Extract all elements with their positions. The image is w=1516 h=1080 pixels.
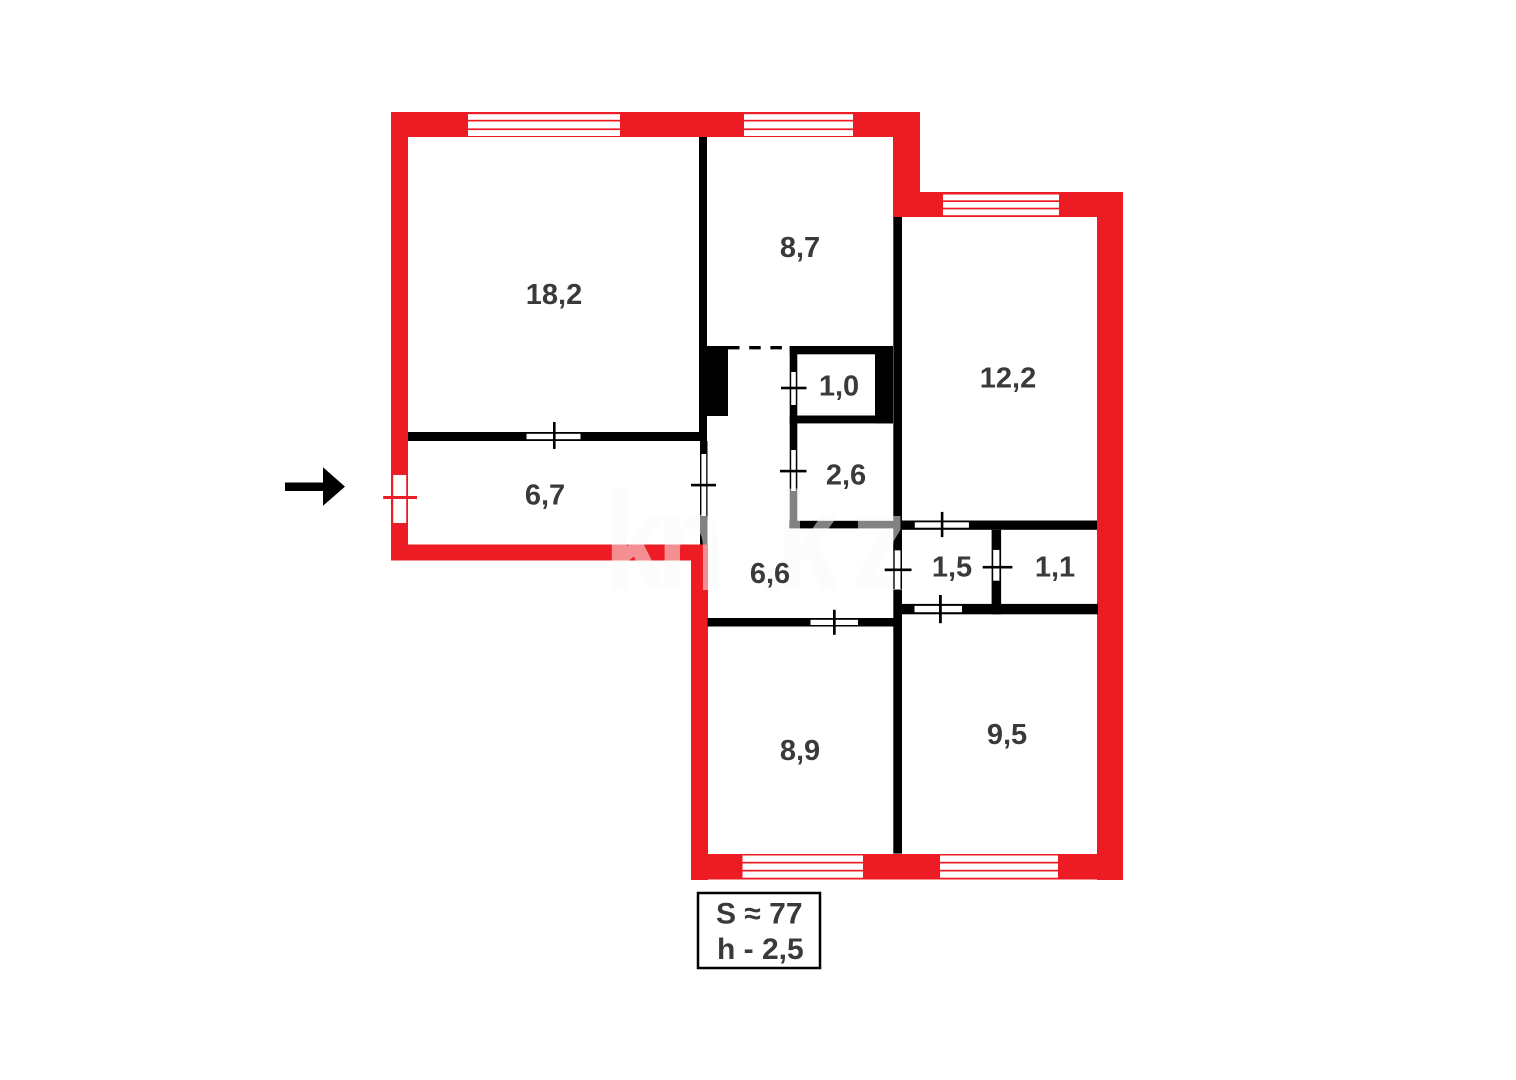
- svg-text:S ≈ 77: S ≈ 77: [716, 897, 803, 930]
- svg-text:1,1: 1,1: [1035, 552, 1075, 584]
- svg-text:1,0: 1,0: [819, 371, 859, 403]
- svg-text:2,6: 2,6: [826, 460, 866, 492]
- svg-text:8,7: 8,7: [780, 232, 820, 264]
- svg-text:h - 2,5: h - 2,5: [717, 933, 804, 966]
- svg-text:1,5: 1,5: [932, 552, 972, 584]
- svg-text:18,2: 18,2: [526, 279, 582, 311]
- svg-text:6,7: 6,7: [525, 480, 565, 512]
- svg-text:8,9: 8,9: [780, 735, 820, 767]
- svg-text:6,6: 6,6: [750, 558, 790, 590]
- svg-text:9,5: 9,5: [987, 719, 1027, 751]
- svg-text:12,2: 12,2: [980, 363, 1036, 395]
